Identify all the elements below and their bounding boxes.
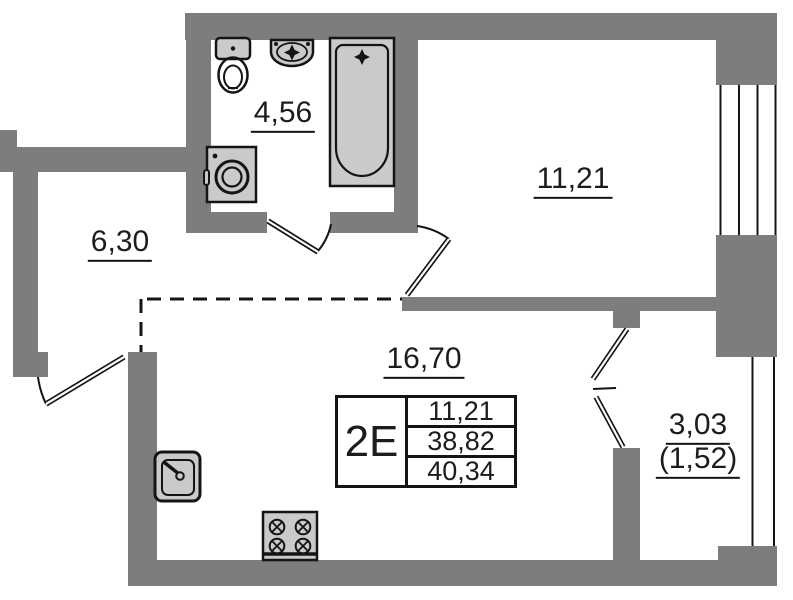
balcony-area-label: 3,03 bbox=[666, 409, 730, 445]
apartment-summary-table: 2E 11,21 38,82 40,34 bbox=[335, 395, 517, 488]
zone-boundary-dashed-line bbox=[141, 299, 402, 352]
balcony-window-icon bbox=[753, 357, 775, 546]
entrance-door-icon bbox=[38, 357, 124, 404]
bathroom-area-value: 4,56 bbox=[251, 97, 315, 133]
balcony-reduced-area-value: (1,52) bbox=[656, 443, 740, 479]
total-area-row: 40,34 bbox=[408, 455, 514, 485]
bathtub-icon bbox=[330, 38, 394, 186]
apartment-areas-column: 11,21 38,82 40,34 bbox=[408, 398, 514, 485]
bedroom-door-icon bbox=[407, 226, 449, 295]
bathroom-door-icon bbox=[268, 221, 331, 252]
washing-machine-icon bbox=[204, 147, 256, 202]
balcony-reduced-area-label: (1,52) bbox=[656, 443, 740, 479]
balcony-area-value: 3,03 bbox=[666, 409, 730, 445]
bedroom-area-value: 11,21 bbox=[534, 163, 613, 199]
floor-plan: 4,56 6,30 11,21 16,70 3,03 (1,52) 2E 11,… bbox=[0, 0, 793, 600]
hallway-area-label: 6,30 bbox=[88, 226, 152, 262]
bedroom-window-icon bbox=[721, 85, 776, 235]
living-area-row: 11,21 bbox=[408, 398, 514, 425]
hallway-area-value: 6,30 bbox=[88, 226, 152, 262]
living-area-value: 16,70 bbox=[383, 343, 464, 379]
wash-basin-icon bbox=[271, 40, 313, 66]
balcony-folding-door-icon bbox=[593, 329, 627, 447]
floorplan-linework bbox=[0, 0, 793, 600]
living-area-label: 16,70 bbox=[383, 343, 464, 379]
apartment-area-row: 38,82 bbox=[408, 425, 514, 455]
toilet-icon bbox=[216, 38, 250, 93]
bathroom-area-label: 4,56 bbox=[251, 97, 315, 133]
kitchen-sink-icon bbox=[155, 452, 200, 501]
bedroom-area-label: 11,21 bbox=[534, 163, 613, 199]
apartment-type-cell: 2E bbox=[338, 398, 408, 485]
stove-icon bbox=[263, 512, 317, 560]
